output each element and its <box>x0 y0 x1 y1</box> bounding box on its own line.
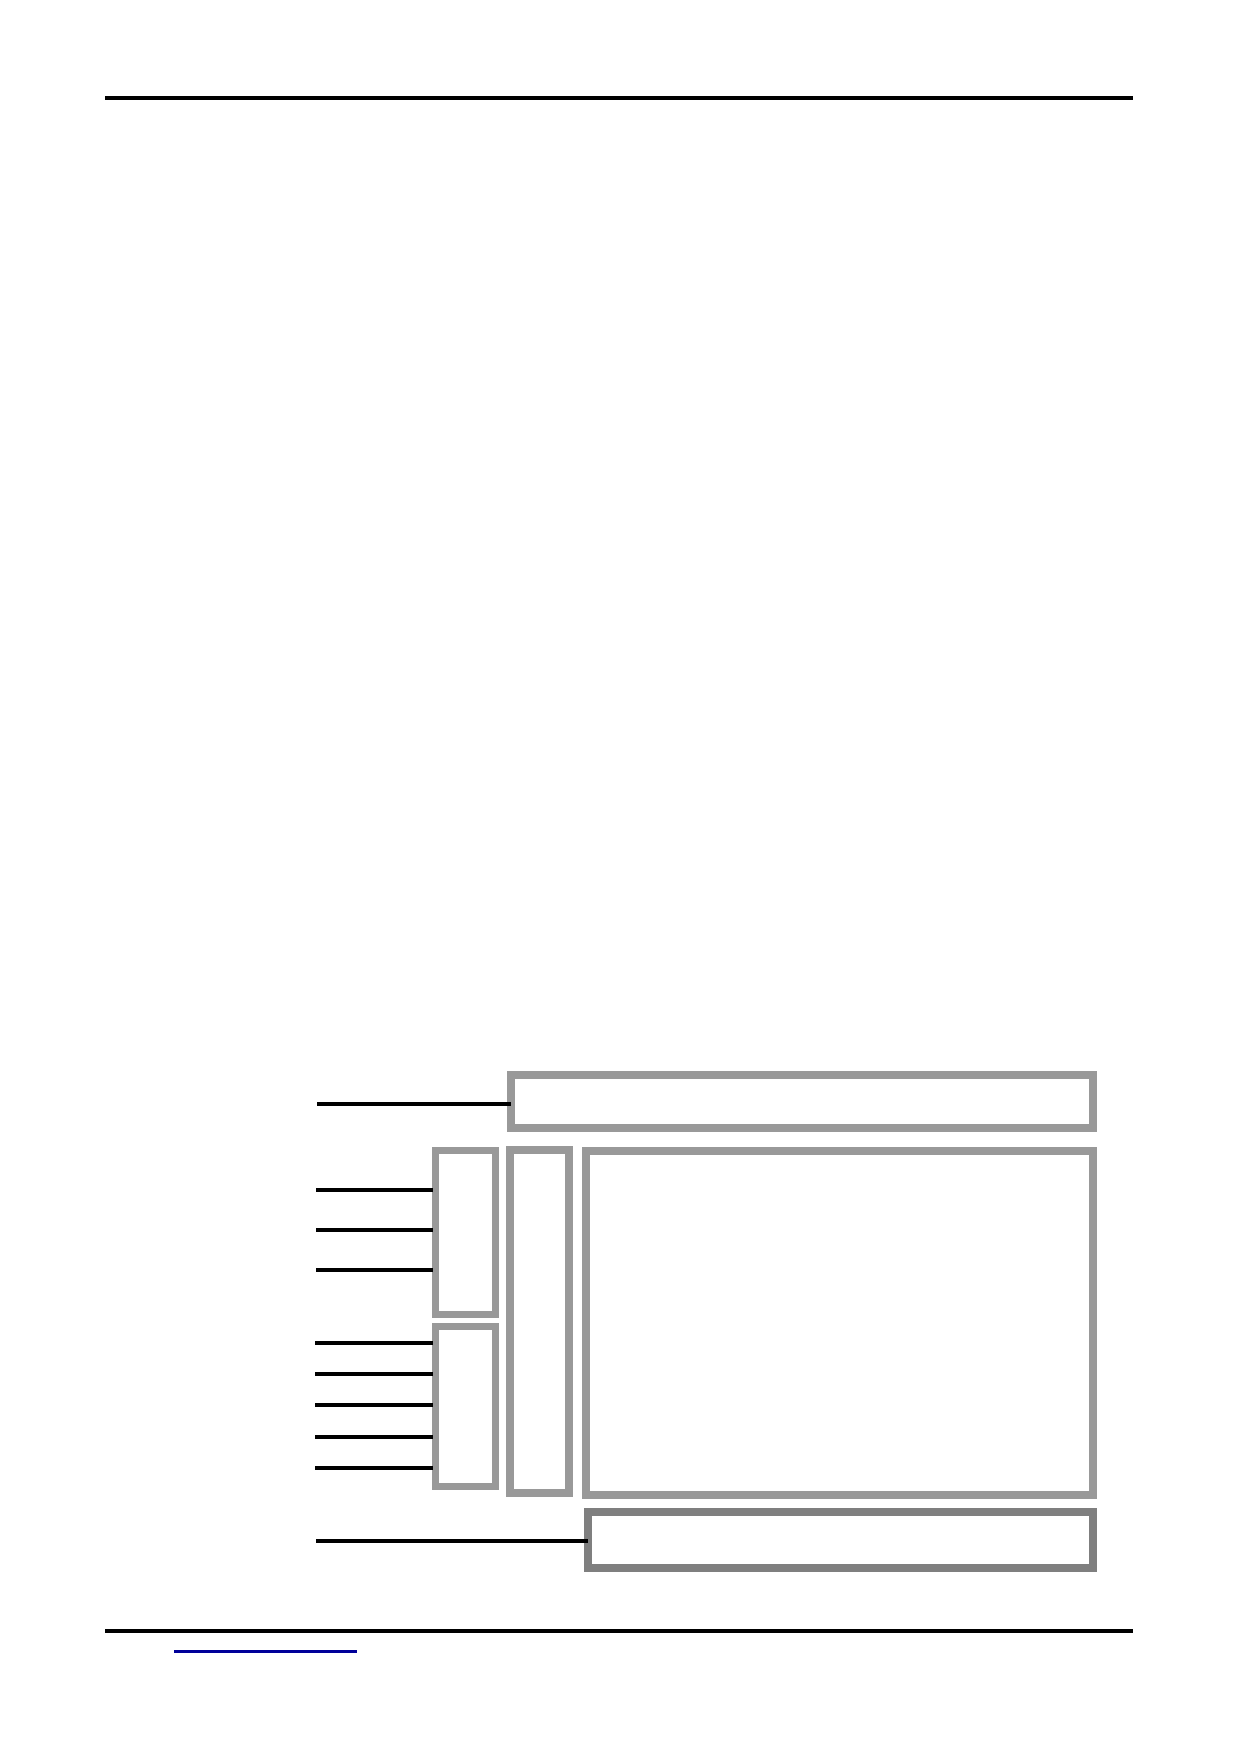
callout-line-top-bar <box>317 1102 511 1106</box>
main-box <box>582 1147 1097 1499</box>
callout-line-box1-3 <box>316 1268 433 1272</box>
callout-line-box1-1 <box>316 1188 433 1192</box>
callout-line-box2-2 <box>315 1372 433 1376</box>
callout-line-box2-5 <box>315 1466 433 1470</box>
callout-line-box2-3 <box>315 1403 433 1407</box>
middle-column-box <box>506 1146 573 1497</box>
footer-link[interactable] <box>174 1650 357 1653</box>
callout-line-box2-1 <box>315 1341 433 1345</box>
panel-figure <box>0 0 1240 1754</box>
left-box-1 <box>432 1147 499 1318</box>
footer-rule <box>105 1629 1133 1633</box>
footer-link-underline <box>174 1650 357 1653</box>
callout-line-bottom-bar <box>316 1539 588 1543</box>
top-bar-box <box>507 1071 1097 1132</box>
left-box-2 <box>432 1323 499 1490</box>
callout-line-box1-2 <box>316 1228 433 1232</box>
bottom-bar-box <box>584 1508 1097 1572</box>
callout-line-box2-4 <box>315 1435 433 1439</box>
